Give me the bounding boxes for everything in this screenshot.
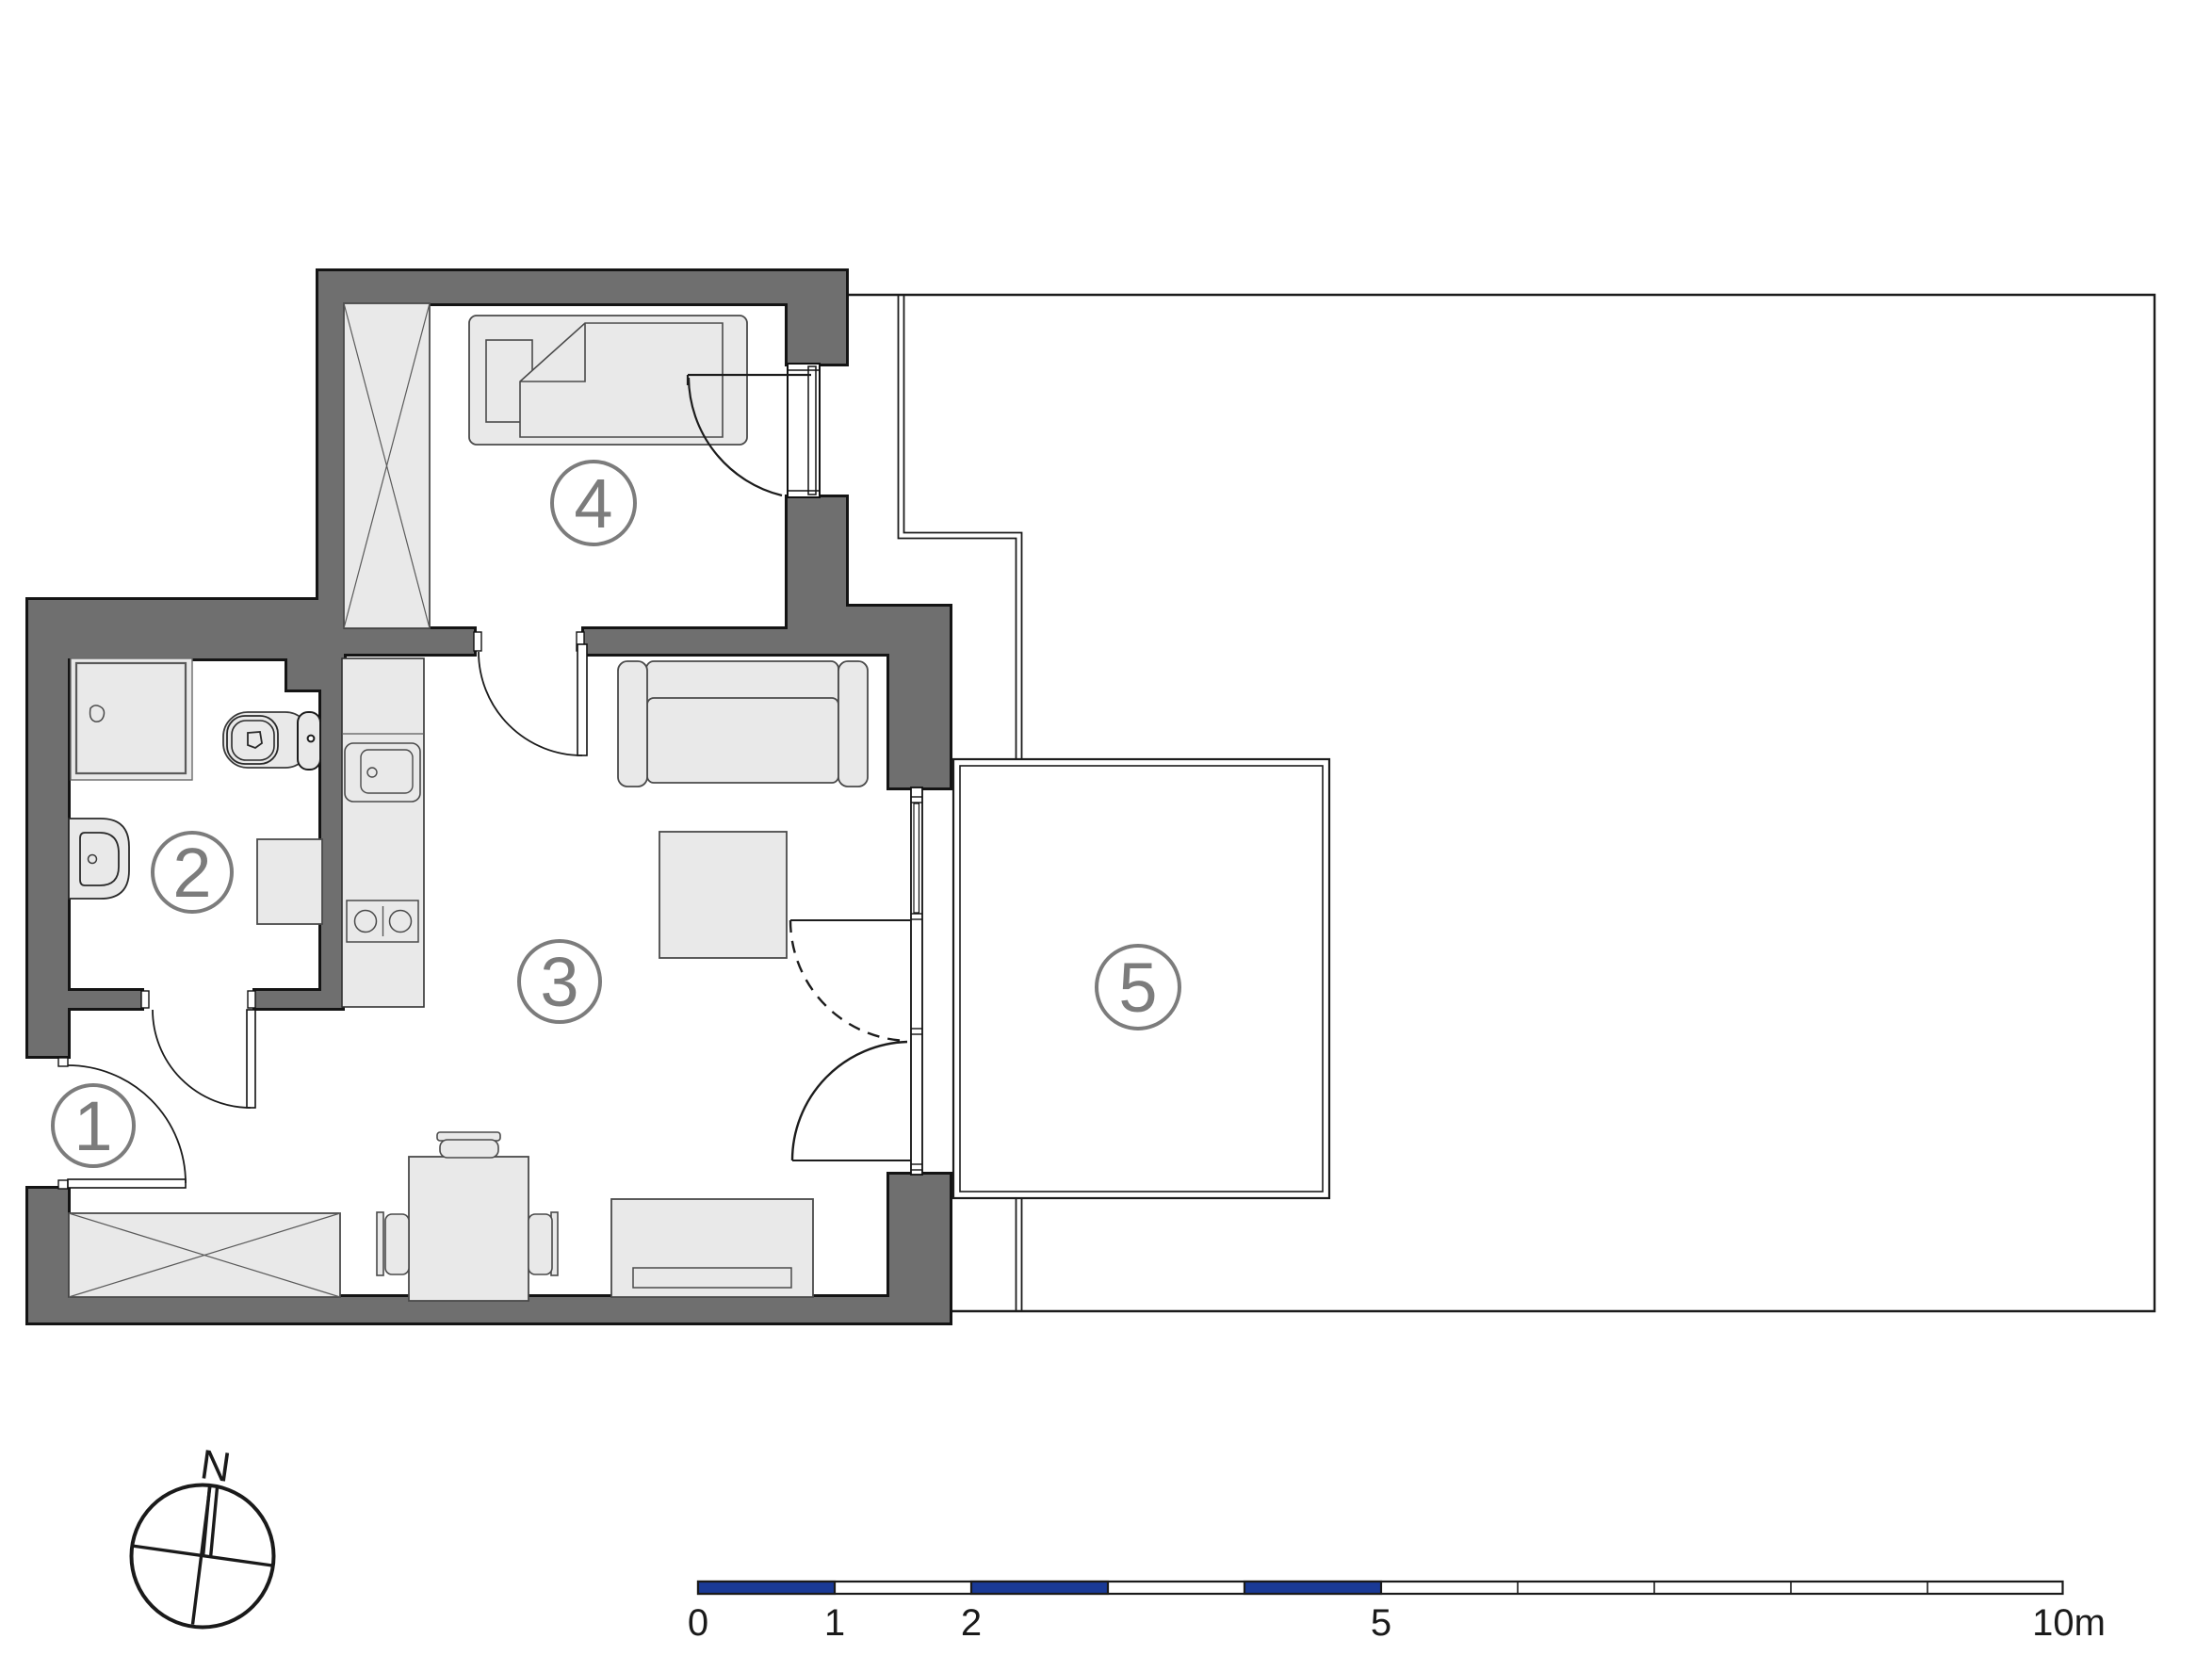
svg-text:1: 1 (824, 1602, 845, 1644)
svg-text:2: 2 (961, 1602, 982, 1644)
svg-text:5: 5 (1118, 949, 1157, 1027)
svg-text:3: 3 (540, 943, 578, 1021)
svg-text:10m: 10m (2032, 1602, 2106, 1644)
svg-text:4: 4 (574, 464, 612, 543)
svg-text:N: N (198, 1441, 234, 1491)
svg-text:5: 5 (1371, 1602, 1391, 1644)
svg-text:0: 0 (688, 1602, 708, 1644)
svg-text:1: 1 (73, 1087, 112, 1165)
svg-text:2: 2 (172, 834, 211, 912)
